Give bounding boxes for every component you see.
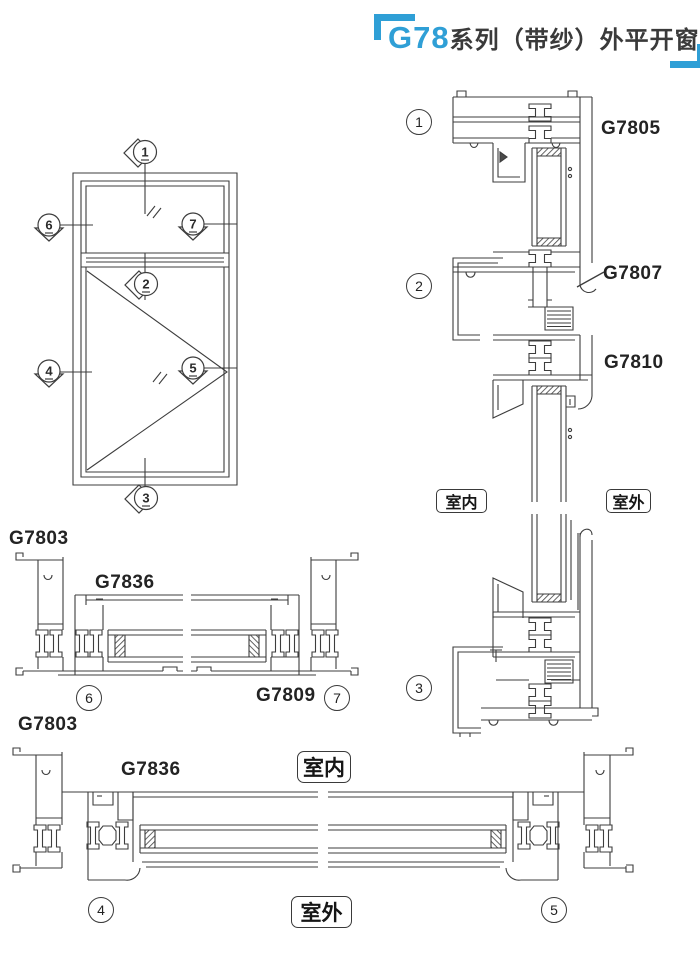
svg-text:7: 7 [189,217,196,232]
label-g7807: G7807 [603,263,663,285]
indoor-label-right: 室内 [436,489,487,513]
svg-text:6: 6 [45,218,52,233]
mid-horizontal-section-drawing [16,553,358,675]
svg-text:2: 2 [142,277,149,292]
svg-text:1: 1 [141,145,148,160]
label-g7810: G7810 [604,352,664,374]
elevation-marker-1: 1 [123,135,165,177]
elevation-marker-7: 7 [177,212,219,254]
svg-text:3: 3 [142,491,149,506]
section-marker-4: 4 [88,897,114,923]
section-marker-7: 7 [324,685,350,711]
label-g7836-mid: G7836 [95,572,155,594]
section-marker-3: 3 [406,675,432,701]
label-g7805: G7805 [601,118,661,140]
svg-text:5: 5 [189,361,196,376]
title-suffix: 系列（带纱）外平开窗组装图 [450,20,700,55]
svg-text:4: 4 [45,364,53,379]
section-marker-2: 2 [406,273,432,299]
label-g7803-bottom: G7803 [18,714,78,736]
elevation-marker-5: 5 [177,356,219,398]
elevation-marker-4: 4 [33,359,75,401]
outdoor-label-right: 室外 [606,489,651,513]
indoor-label-bottom: 室内 [297,751,351,783]
label-g7836-bottom: G7836 [121,759,181,781]
section-marker-5: 5 [541,897,567,923]
section-marker-6: 6 [76,685,102,711]
elevation-marker-3: 3 [124,481,166,523]
vertical-section-drawing [453,91,604,737]
outdoor-label-bottom: 室外 [291,896,352,928]
elevation-marker-6: 6 [33,213,75,255]
section-marker-1: 1 [406,109,432,135]
title-series: G78 [388,20,450,56]
drawing-canvas [0,0,700,965]
title-bracket-right [670,44,700,68]
elevation-marker-2: 2 [124,267,166,309]
page-title: G78系列（带纱）外平开窗组装图 [388,20,700,56]
label-g7809: G7809 [256,685,316,707]
label-g7803-mid: G7803 [9,528,69,550]
assembly-drawing-page: G78系列（带纱）外平开窗组装图 G7805 G7807 G7810 G7803… [0,0,700,965]
